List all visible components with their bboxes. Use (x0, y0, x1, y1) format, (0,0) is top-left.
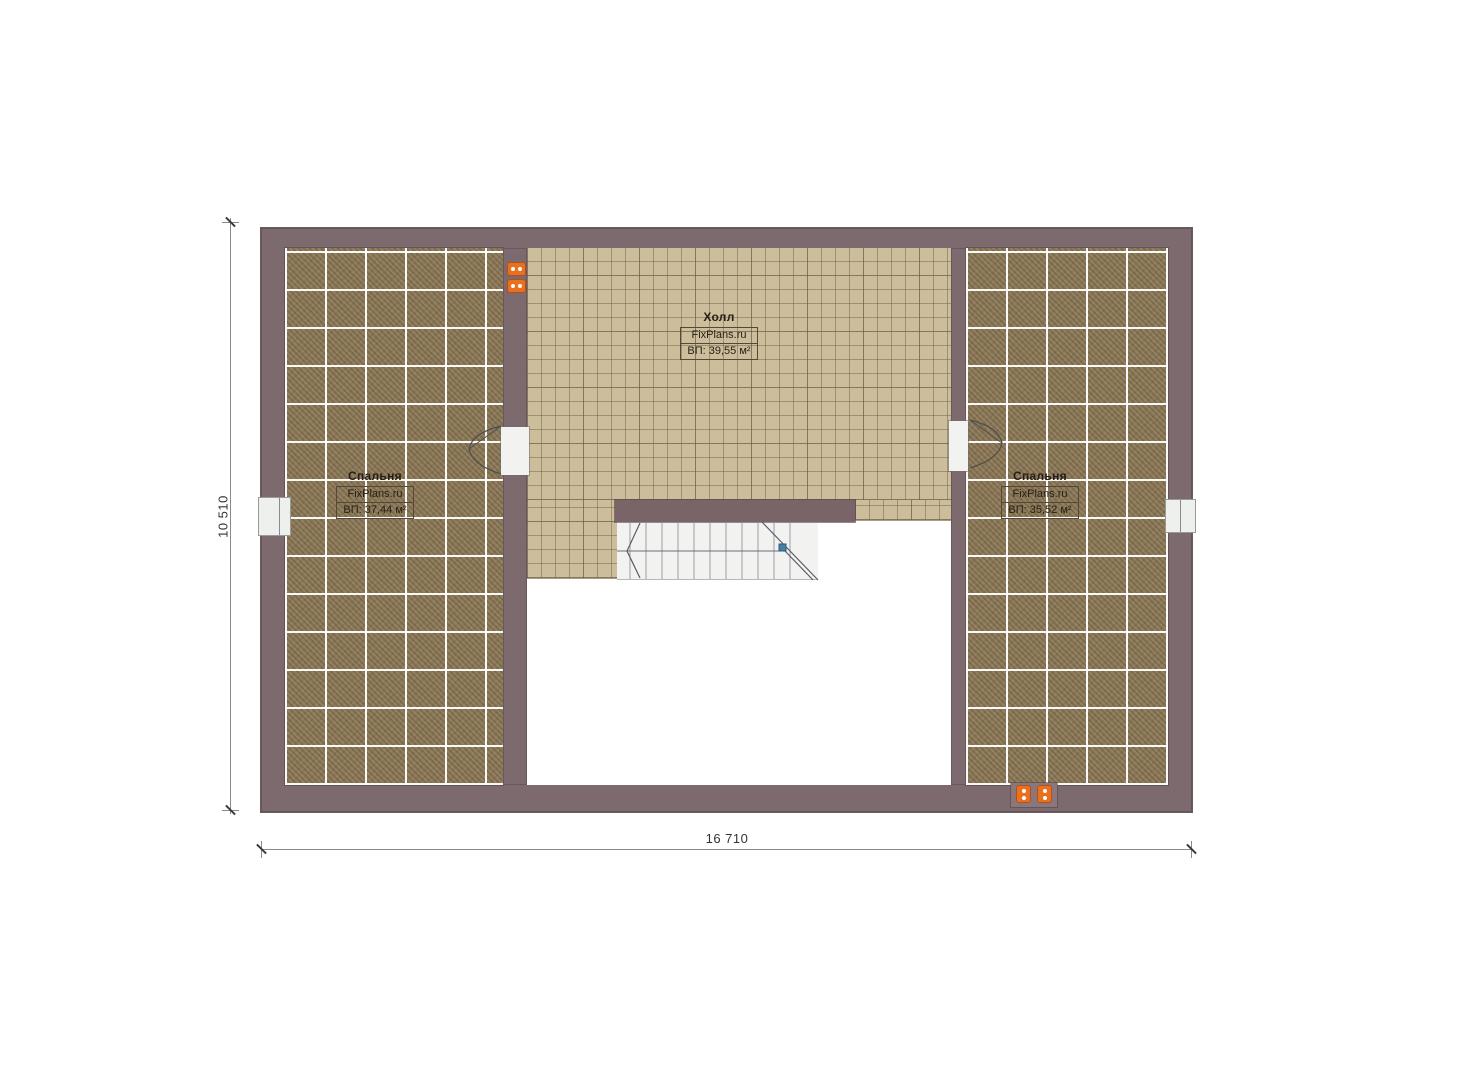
room-hall-floor-strip-right (855, 500, 951, 521)
outlet-group-bottom (1011, 783, 1057, 807)
interior-wall-left (503, 248, 527, 785)
stairwell-wall (615, 500, 855, 522)
room-label-bedroom-left: Спальня FixPlans.ru ВП: 37,44 м² (320, 469, 430, 519)
outlet-icon (507, 279, 526, 293)
watermark: FixPlans.ru (337, 487, 412, 503)
room-info-box: FixPlans.ru ВП: 37,44 м² (336, 486, 413, 519)
room-label-hall: Холл FixPlans.ru ВП: 39,55 м² (664, 310, 774, 360)
stair-marker-icon (779, 544, 786, 551)
window-left-icon (258, 497, 291, 536)
room-label-bedroom-right: Спальня FixPlans.ru ВП: 35,52 м² (985, 469, 1095, 519)
room-hall-floor (527, 248, 951, 500)
room-name: Холл (664, 310, 774, 324)
room-name: Спальня (320, 469, 430, 483)
room-area: ВП: 39,55 м² (681, 344, 756, 359)
outlet-icon (507, 262, 526, 276)
room-info-box: FixPlans.ru ВП: 39,55 м² (680, 327, 757, 360)
floor-plan: Спальня FixPlans.ru ВП: 37,44 м² Холл Fi… (0, 0, 1474, 1080)
door-swing-left-icon (460, 423, 506, 479)
staircase (617, 522, 832, 580)
outlet-icon (1016, 785, 1031, 803)
room-area: ВП: 35,52 м² (1002, 503, 1077, 518)
window-right-icon (1165, 499, 1196, 533)
building-outline: Спальня FixPlans.ru ВП: 37,44 м² Холл Fi… (261, 228, 1192, 812)
room-hall-floor-strip-left (527, 500, 617, 579)
room-area: ВП: 37,44 м² (337, 503, 412, 518)
watermark: FixPlans.ru (681, 328, 756, 344)
room-info-box: FixPlans.ru ВП: 35,52 м² (1001, 486, 1078, 519)
outlet-icon (1037, 785, 1052, 803)
interior-wall-right (951, 248, 966, 785)
room-name: Спальня (985, 469, 1095, 483)
dimension-vertical-value: 10 510 (216, 489, 231, 545)
outlet-group-left (507, 262, 526, 293)
dimension-horizontal-value: 16 710 (677, 831, 777, 846)
door-swing-right-icon (965, 417, 1011, 473)
watermark: FixPlans.ru (1002, 487, 1077, 503)
